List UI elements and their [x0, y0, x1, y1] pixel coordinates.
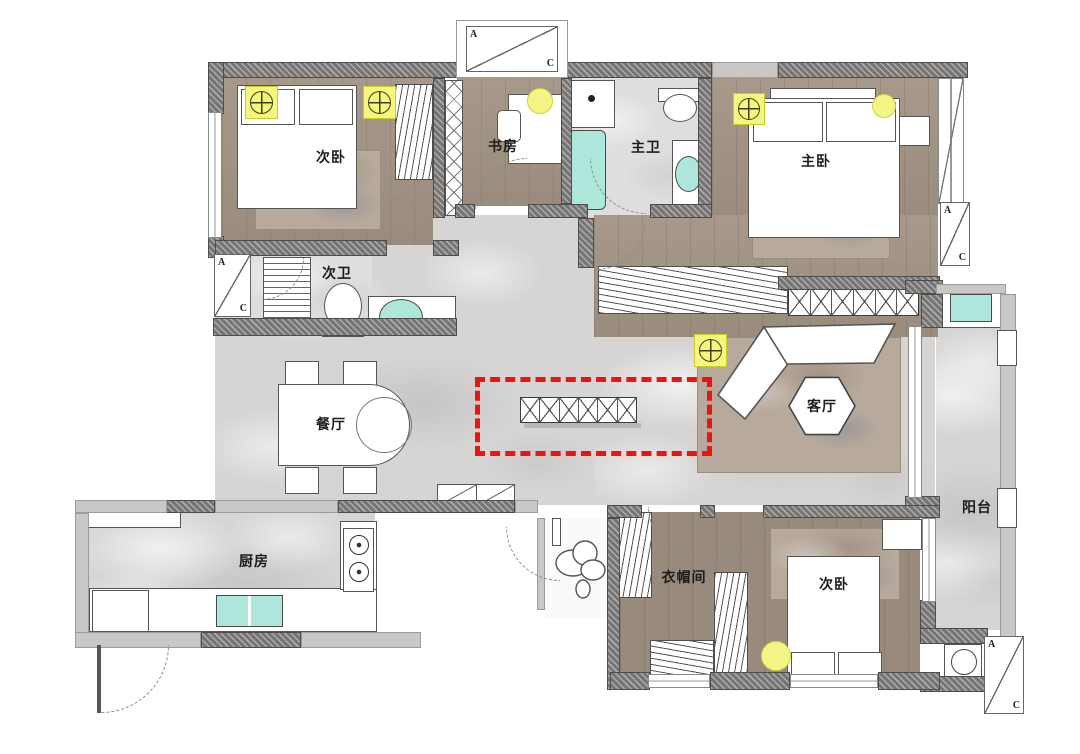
cloakroom-wardrobe-bottom	[650, 640, 714, 678]
room-label-balcony: 阳台	[962, 497, 992, 517]
wall-se-bottom-l	[610, 672, 650, 690]
wall-master-door-jamb	[578, 218, 594, 268]
wall-bath2-bottom	[213, 318, 457, 336]
bedroom-se-pillow-left	[791, 652, 835, 675]
stove-burner-bottom	[349, 562, 369, 582]
wall-bath-bottom-r	[650, 204, 712, 218]
downlight-icon	[694, 334, 727, 367]
stove-burner-top	[349, 535, 369, 555]
downlight-icon	[733, 93, 765, 125]
wall-nw-left-upper	[208, 62, 224, 114]
wall-washer-top	[920, 628, 988, 644]
downlight-icon	[245, 86, 278, 119]
balcony-floor	[936, 294, 1000, 630]
kitchen-fridge	[92, 590, 149, 632]
master-bath-toilet-bowl	[663, 94, 697, 122]
dining-table-round-end	[356, 397, 412, 453]
door-arc-entry[interactable]	[506, 527, 560, 581]
dining-chair-3	[285, 467, 319, 494]
wall-kitchen-bottom-r	[301, 632, 421, 648]
ceiling-light-icon	[527, 88, 553, 114]
wall-se-bottom-m	[710, 672, 790, 690]
wall-nw-right	[433, 78, 445, 218]
wall-kitchen-bottom-block	[201, 632, 301, 648]
window-bedroom-se-right	[922, 518, 936, 602]
wall-kitchen-dining-south	[338, 500, 515, 513]
room-label-bedroom-se: 次卧	[819, 574, 849, 594]
washing-machine-drum	[951, 649, 977, 675]
ac-unit-left: A C	[214, 254, 251, 317]
wall-top-3	[778, 62, 968, 78]
wall-kitchen-left	[75, 513, 89, 648]
kitchen-door-leaf[interactable]	[97, 645, 101, 713]
window-bedroom-se-bottom-2	[790, 674, 878, 688]
wall-kitchen-top-l	[75, 500, 167, 513]
balcony-window-box-1	[997, 330, 1017, 366]
study-bookshelf	[445, 80, 463, 216]
window-master-right	[938, 78, 964, 204]
ac-letter-a: A	[218, 257, 225, 268]
room-label-dining: 餐厅	[316, 414, 346, 434]
room-label-living: 客厅	[807, 396, 837, 416]
floor-plan: A C A C A C A C 次卧 书房 主卫 主卧 次卫 餐厅 客厅 厨房 …	[0, 0, 1080, 754]
room-label-study: 书房	[488, 136, 518, 156]
balcony-sink	[950, 294, 992, 322]
room-label-kitchen: 厨房	[239, 551, 269, 571]
wall-study-bottom-l	[455, 204, 475, 218]
dining-chair-4	[343, 467, 377, 494]
wall-bath-master-divider	[698, 78, 712, 216]
wall-entry-top	[515, 500, 538, 513]
wall-balcony-top	[936, 284, 1006, 294]
shower-drain-icon	[588, 95, 595, 102]
wall-top-1	[215, 62, 465, 78]
room-label-bedroom-nw: 次卧	[316, 147, 346, 167]
ac-letter-c: C	[1013, 700, 1020, 711]
ac-unit-top: A C	[466, 26, 558, 72]
wall-cloak-top-l	[607, 505, 642, 518]
window-bedroom-nw	[208, 112, 222, 238]
ac-letter-c: C	[240, 303, 247, 314]
highlighted-cabinet-shadow	[524, 423, 641, 428]
ceiling-light-icon	[761, 641, 791, 671]
wall-study-bottom-m	[528, 204, 588, 218]
ac-letter-c: C	[547, 58, 554, 69]
wall-se-bottom-r	[878, 672, 940, 690]
wall-top-concrete	[712, 62, 778, 78]
living-room-sofa	[690, 300, 940, 450]
wall-se-top	[763, 505, 940, 518]
window-bedroom-se-bottom-1	[648, 674, 710, 688]
wall-balcony-pillar	[921, 294, 943, 328]
wall-study-bath-divider	[561, 78, 572, 204]
cloakroom-wardrobe-middle	[714, 572, 748, 680]
wall-nw-bottom-2	[433, 240, 459, 256]
ac-letter-c: C	[959, 252, 966, 263]
downlight-icon	[363, 86, 396, 119]
balcony-window-box-2	[997, 488, 1017, 528]
room-label-master-bedroom: 主卧	[801, 151, 831, 171]
bedroom-nw-wardrobe	[395, 84, 433, 180]
cloakroom-wardrobe-left	[618, 512, 652, 598]
ac-letter-a: A	[944, 205, 951, 216]
room-label-second-bath: 次卫	[322, 263, 352, 283]
balcony-sliding-door[interactable]	[908, 326, 922, 498]
room-label-cloakroom: 衣帽间	[662, 567, 707, 587]
bedroom-se-pillow-right	[838, 652, 882, 675]
ceiling-light-icon	[872, 94, 896, 118]
ac-unit-right: A C	[940, 202, 970, 266]
wall-kitchen-top-m	[215, 500, 338, 513]
bedroom-se-nightstand	[882, 519, 922, 550]
ac-unit-bottom-right: A C	[984, 636, 1024, 714]
highlighted-cabinet	[520, 397, 637, 423]
ac-letter-a: A	[470, 29, 477, 40]
wall-cloak-left	[607, 518, 620, 690]
bedroom-nw-pillow-right	[299, 89, 353, 125]
wall-top-2	[563, 62, 712, 78]
ac-letter-a: A	[988, 639, 995, 650]
master-bath-shower	[567, 80, 615, 128]
kitchen-sink	[216, 595, 283, 627]
door-arc-kitchen[interactable]	[101, 645, 169, 713]
room-label-master-bath: 主卫	[631, 137, 661, 157]
wall-kitchen-top-block	[165, 500, 215, 513]
